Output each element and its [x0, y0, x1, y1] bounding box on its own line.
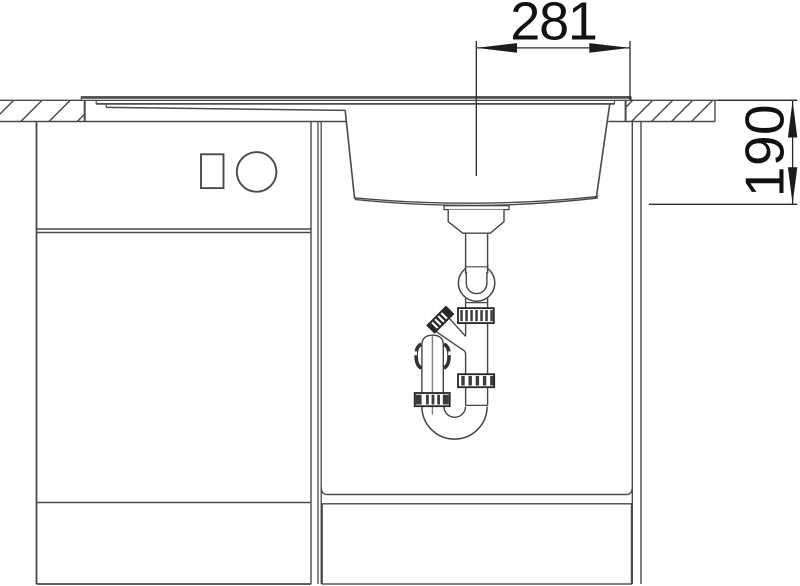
svg-text:190: 190: [734, 104, 796, 197]
svg-text:281: 281: [510, 0, 597, 52]
